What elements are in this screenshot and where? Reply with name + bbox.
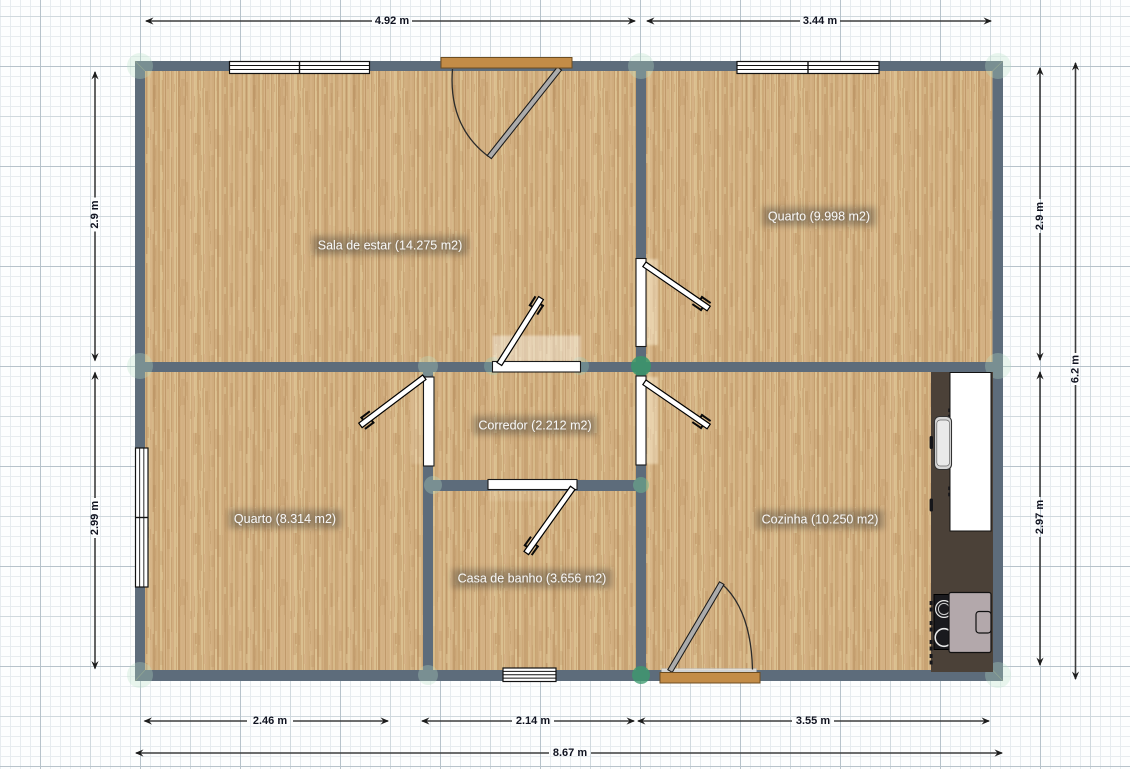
- svg-text:2.9 m: 2.9 m: [1034, 202, 1046, 230]
- svg-text:Quarto (9.998 m2): Quarto (9.998 m2): [768, 210, 870, 224]
- svg-text:2.99 m: 2.99 m: [89, 501, 101, 535]
- svg-text:Quarto (8.314 m2): Quarto (8.314 m2): [234, 512, 336, 526]
- svg-text:2.14 m: 2.14 m: [516, 715, 550, 727]
- svg-text:2.97 m: 2.97 m: [1034, 500, 1046, 534]
- svg-text:2.46 m: 2.46 m: [253, 715, 287, 727]
- svg-text:8.67 m: 8.67 m: [553, 747, 587, 759]
- svg-text:Sala de estar (14.275 m2): Sala de estar (14.275 m2): [318, 239, 463, 253]
- svg-text:3.44 m: 3.44 m: [803, 15, 837, 27]
- svg-text:4.92 m: 4.92 m: [375, 15, 409, 27]
- svg-text:2.9 m: 2.9 m: [89, 200, 101, 228]
- svg-text:6.2 m: 6.2 m: [1070, 355, 1082, 383]
- svg-text:Cozinha (10.250 m2): Cozinha (10.250 m2): [762, 513, 879, 527]
- svg-text:Casa de banho (3.656 m2): Casa de banho (3.656 m2): [458, 572, 607, 586]
- svg-text:3.55 m: 3.55 m: [796, 715, 830, 727]
- svg-text:Corredor (2.212 m2): Corredor (2.212 m2): [478, 419, 591, 433]
